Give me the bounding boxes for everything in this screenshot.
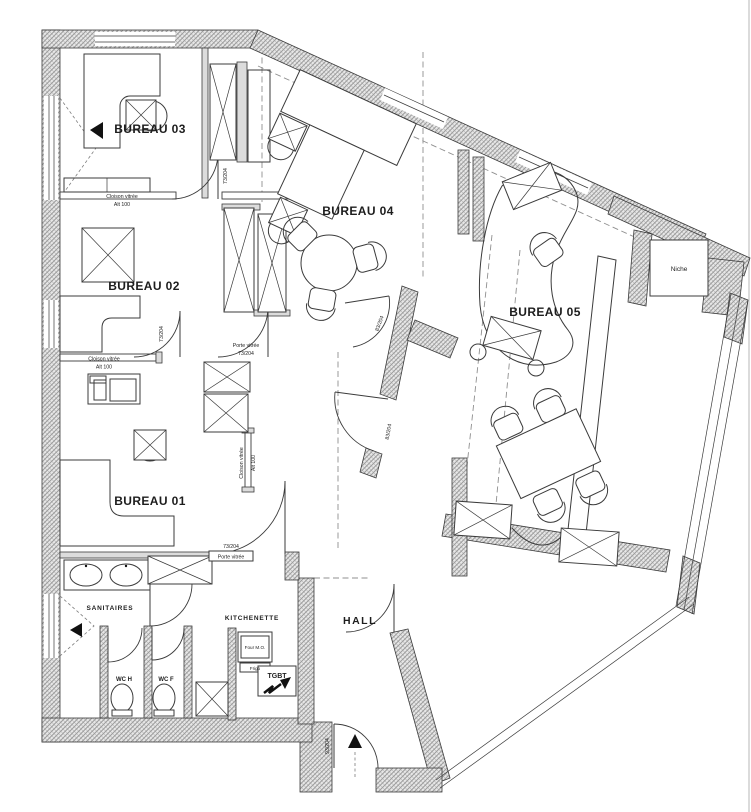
label-alt-1: Alt 100: [114, 202, 130, 208]
label-bureau04: BUREAU 04: [322, 204, 394, 218]
label-door73-b02a: 73/204: [159, 326, 165, 342]
cabinet-bottom-right: [559, 528, 619, 566]
door-wc-f: [152, 628, 184, 660]
label-door83-b05: 83/204: [385, 423, 394, 440]
label-cloison-3: Cloison vitrée: [239, 447, 245, 479]
label-wc-f: WC F: [158, 677, 174, 683]
arrow-sanitaires-icon: [70, 623, 82, 637]
floor-plan-page: BUREAU 03 BUREAU 02 BUREAU 01 BUREAU 04 …: [0, 0, 751, 812]
label-cloison-1: Cloison vitrée: [106, 194, 138, 200]
label-bureau02: BUREAU 02: [108, 279, 180, 293]
label-tgbt: TGBT: [267, 673, 287, 680]
window-counter: [566, 256, 616, 552]
toilet-wc-f: [153, 684, 175, 716]
label-bureau05: BUREAU 05: [509, 305, 581, 319]
tgbt-panel: [258, 666, 296, 696]
label-door93-entrance: 93/204: [325, 738, 331, 754]
label-door73-b02b: 73/204: [238, 351, 254, 357]
door-bureau05: [335, 392, 388, 451]
label-porte-vitree-b02: Porte vitrée: [233, 343, 260, 349]
door-wc-h: [108, 628, 142, 662]
label-door83-b04: 83/204: [375, 315, 386, 332]
label-sanitaires: SANITAIRES: [87, 605, 134, 612]
label-bureau03: BUREAU 03: [114, 122, 186, 136]
floor-plan-svg: BUREAU 03 BUREAU 02 BUREAU 01 BUREAU 04 …: [0, 0, 751, 812]
label-hall: HALL: [343, 615, 377, 627]
bottom-right-outline: [436, 597, 694, 788]
furniture-bureau01: [60, 362, 250, 546]
label-cloison-2: Cloison vitrée: [88, 357, 120, 363]
label-porte-vitree-san: Porte vitrée: [218, 555, 245, 561]
direction-arrows: [70, 122, 362, 778]
label-alt-2: Alt 100: [96, 365, 112, 371]
label-kitchenette: KITCHENETTE: [225, 615, 279, 622]
label-bureau01: BUREAU 01: [114, 494, 186, 508]
label-door73-b03: 73/204: [223, 168, 229, 184]
toilet-wc-h: [111, 684, 133, 716]
furniture-kitchenette: [238, 632, 296, 696]
door-bureau02-left: [134, 311, 180, 357]
label-niche: Niche: [671, 266, 688, 273]
label-wc-h: WC H: [116, 677, 132, 683]
arrow-entrance-icon: [348, 734, 362, 748]
label-four-mo: Four M.O.: [245, 645, 266, 650]
label-alt-3: Alt 100: [251, 455, 257, 471]
door-sanitaires-inner: [150, 584, 192, 626]
label-frigo: Frigo: [250, 666, 261, 671]
cabinet-bottom-left: [454, 501, 512, 539]
label-door73-san: 73/204: [223, 544, 239, 550]
